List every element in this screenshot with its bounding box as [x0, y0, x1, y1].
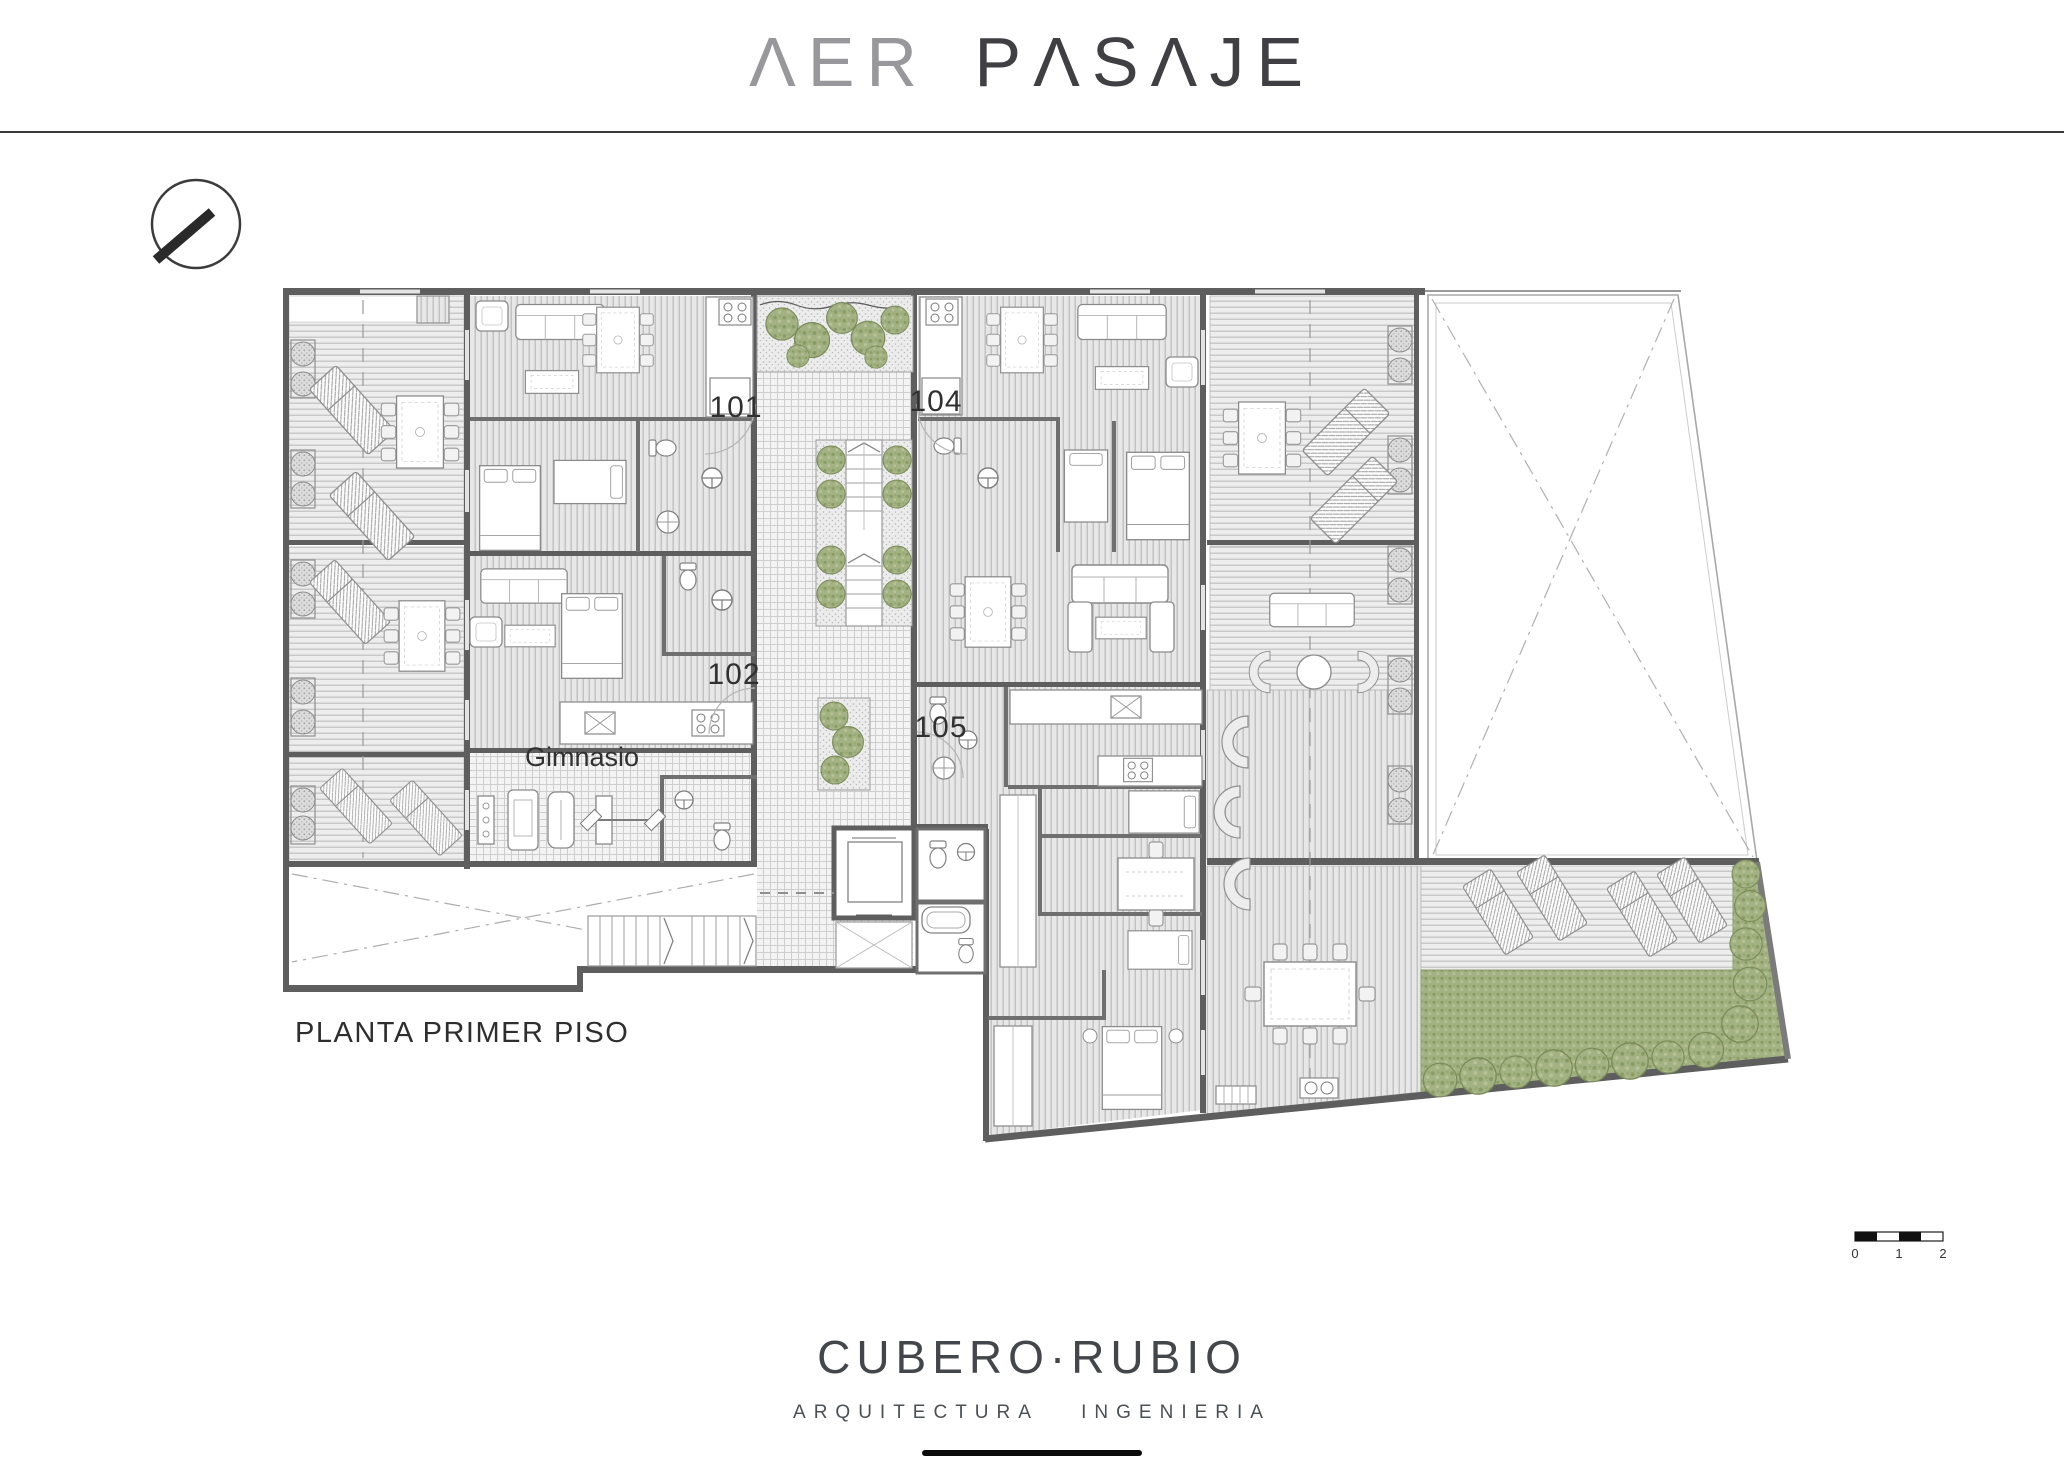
unit-label-101: 101	[709, 391, 762, 424]
unit-label-102: 102	[707, 658, 760, 691]
unit-label-104: 104	[909, 385, 962, 418]
scale-tick-2: 2	[1939, 1246, 1946, 1261]
gym-label: Gimnasio	[525, 742, 639, 772]
scale-tick-1: 1	[1895, 1246, 1902, 1261]
bottom-bar	[922, 1450, 1142, 1456]
studio-logo: CUBERO·RUBIO ARQUITECTURA INGENIERIA	[0, 1330, 2064, 1424]
double-height-void	[1428, 295, 1757, 861]
courtyard-stair	[846, 440, 882, 626]
studio-tagline: ARQUITECTURA INGENIERIA	[0, 1402, 2064, 1424]
plan-title: PLANTA PRIMER PISO	[295, 1017, 629, 1049]
main-stair	[588, 916, 756, 966]
sheet: ΛER PΛSΛJE	[0, 0, 2064, 1458]
core-bathrooms	[917, 829, 985, 973]
scale-tick-0: 0	[1851, 1246, 1858, 1261]
elevator-shaft	[836, 922, 912, 968]
tagline-word-2: INGENIERIA	[1081, 1402, 1271, 1423]
unit-label-105: 105	[914, 711, 967, 744]
north-arrow	[152, 180, 240, 268]
scale-bar: 0 1 2	[1851, 1232, 1946, 1261]
studio-name: CUBERO·RUBIO	[0, 1330, 2064, 1384]
elevator	[834, 828, 914, 918]
floor-plan-drawing: 101 104 102 105 Gimnasio PLANTA PRIMER P…	[0, 0, 2064, 1458]
tagline-word-1: ARQUITECTURA	[793, 1402, 1038, 1423]
